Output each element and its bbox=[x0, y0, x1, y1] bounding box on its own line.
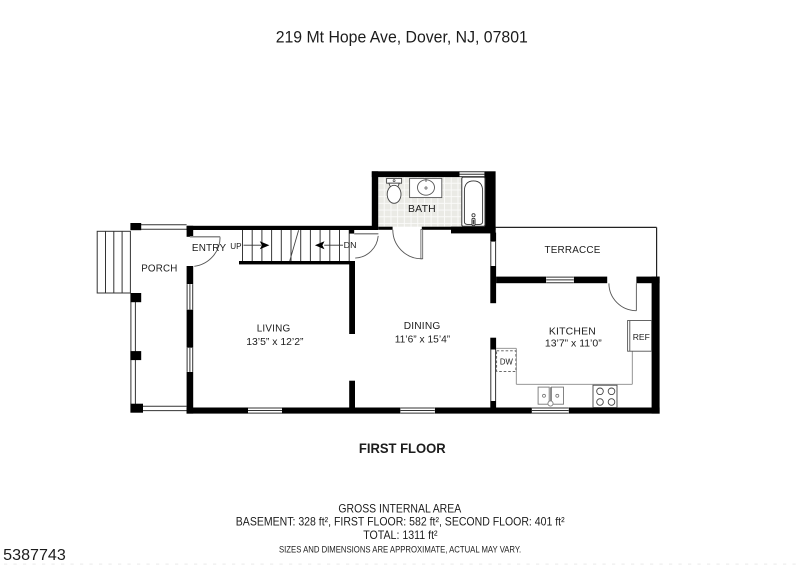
svg-text:DINING: DINING bbox=[404, 320, 441, 332]
svg-text:TOTAL: 1311 ft²: TOTAL: 1311 ft² bbox=[363, 528, 437, 542]
svg-text:DN: DN bbox=[344, 240, 357, 250]
svg-text:GROSS INTERNAL AREA: GROSS INTERNAL AREA bbox=[338, 502, 461, 516]
svg-text:DW: DW bbox=[500, 357, 513, 367]
svg-text:UP: UP bbox=[230, 241, 241, 251]
svg-text:5387743: 5387743 bbox=[3, 547, 66, 564]
svg-text:FIRST FLOOR: FIRST FLOOR bbox=[359, 440, 446, 456]
svg-text:11’6” x 15’4”: 11’6” x 15’4” bbox=[395, 333, 451, 345]
svg-text:13’5” x 12’2”: 13’5” x 12’2” bbox=[246, 336, 304, 348]
svg-text:13’7” x 11’0”: 13’7” x 11’0” bbox=[545, 338, 602, 350]
svg-text:BASEMENT: 328 ft², FIRST FLOOR: BASEMENT: 328 ft², FIRST FLOOR: 582 ft²,… bbox=[236, 515, 565, 529]
svg-text:REF: REF bbox=[633, 332, 650, 342]
svg-text:LIVING: LIVING bbox=[257, 323, 291, 335]
svg-text:219 Mt Hope Ave, Dover, NJ, 07: 219 Mt Hope Ave, Dover, NJ, 07801 bbox=[276, 28, 528, 46]
svg-text:TERRACCE: TERRACCE bbox=[545, 244, 601, 256]
svg-text:SIZES AND DIMENSIONS ARE APPRO: SIZES AND DIMENSIONS ARE APPROXIMATE, AC… bbox=[279, 544, 521, 555]
svg-text:KITCHEN: KITCHEN bbox=[549, 325, 596, 337]
svg-text:ENTRY: ENTRY bbox=[192, 242, 226, 254]
svg-text:PORCH: PORCH bbox=[141, 263, 177, 275]
svg-text:BATH: BATH bbox=[408, 203, 436, 215]
